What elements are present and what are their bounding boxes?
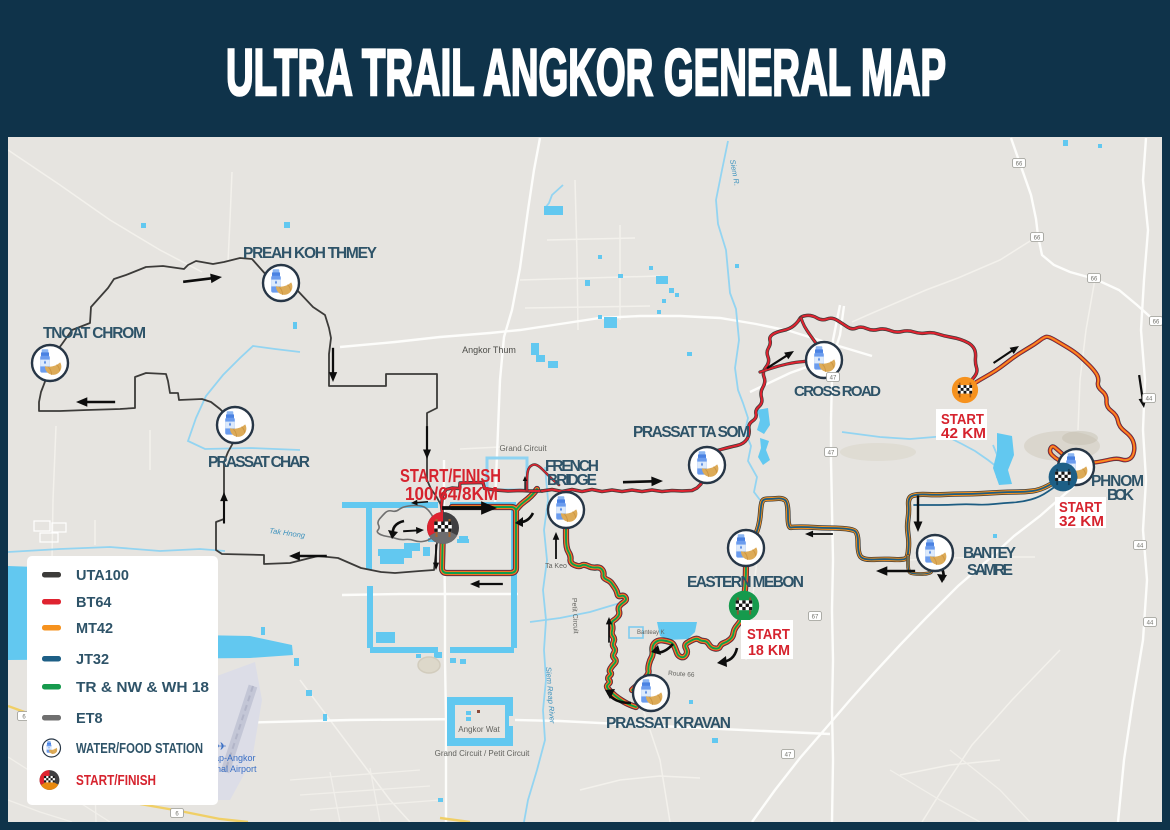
svg-text:47: 47 [785, 753, 792, 759]
svg-text:47: 47 [828, 451, 835, 457]
svg-text:BT64: BT64 [76, 595, 111, 611]
svg-text:Banteay K: Banteay K [637, 630, 665, 636]
svg-text:PRASSAT TA SOM: PRASSAT TA SOM [633, 424, 750, 441]
svg-text:EASTERN MEBON: EASTERN MEBON [687, 574, 804, 591]
svg-text:PRASSAT KRAVAN: PRASSAT KRAVAN [606, 715, 731, 732]
svg-text:100/64/8KM: 100/64/8KM [405, 484, 498, 504]
svg-text:Grand Circuit: Grand Circuit [499, 444, 547, 453]
svg-text:WATER/FOOD STATION: WATER/FOOD STATION [76, 741, 203, 757]
svg-text:START/FINISH: START/FINISH [76, 773, 156, 789]
svg-text:TNOAT CHROM: TNOAT CHROM [43, 325, 146, 342]
svg-text:47: 47 [830, 376, 837, 382]
svg-text:ET8: ET8 [76, 711, 103, 727]
svg-text:ap-Angkor: ap-Angkor [214, 753, 256, 763]
svg-text:CROSS ROAD: CROSS ROAD [794, 383, 881, 400]
svg-text:BOK: BOK [1107, 487, 1135, 504]
svg-text:67: 67 [812, 615, 819, 621]
svg-text:UTA100: UTA100 [76, 568, 129, 584]
svg-text:BRIDGE: BRIDGE [547, 472, 597, 489]
svg-text:44: 44 [1147, 621, 1154, 627]
svg-text:66: 66 [1016, 162, 1023, 168]
svg-text:44: 44 [1137, 544, 1144, 550]
svg-text:Angkor Thum: Angkor Thum [462, 345, 516, 355]
svg-text:JT32: JT32 [76, 652, 109, 668]
svg-text:66: 66 [1091, 277, 1098, 283]
svg-text:ULTRA TRAIL ANGKOR GENERAL MAP: ULTRA TRAIL ANGKOR GENERAL MAP [226, 35, 946, 109]
svg-text:MT42: MT42 [76, 621, 113, 637]
svg-text:PREAH KOH THMEY: PREAH KOH THMEY [243, 245, 378, 262]
svg-text:PRASSAT CHAR: PRASSAT CHAR [208, 454, 310, 471]
svg-text:START: START [747, 626, 790, 643]
svg-text:TR & NW & WH 18: TR & NW & WH 18 [76, 680, 209, 696]
svg-text:66: 66 [1153, 320, 1160, 326]
svg-text:SAMRE: SAMRE [967, 562, 1013, 579]
svg-text:18 KM: 18 KM [748, 642, 790, 659]
svg-text:66: 66 [1034, 236, 1041, 242]
svg-text:32 KM: 32 KM [1059, 514, 1104, 530]
svg-text:Angkor Wat: Angkor Wat [458, 725, 500, 734]
svg-text:START/FINISH: START/FINISH [400, 466, 501, 486]
svg-text:BANTEY: BANTEY [963, 545, 1017, 562]
svg-text:✈: ✈ [217, 741, 226, 753]
svg-text:44: 44 [1146, 397, 1153, 403]
svg-text:42 KM: 42 KM [941, 426, 986, 442]
svg-text:Grand Circuit / Petit Circuit: Grand Circuit / Petit Circuit [435, 749, 530, 758]
svg-text:Ta Keo: Ta Keo [545, 563, 567, 570]
